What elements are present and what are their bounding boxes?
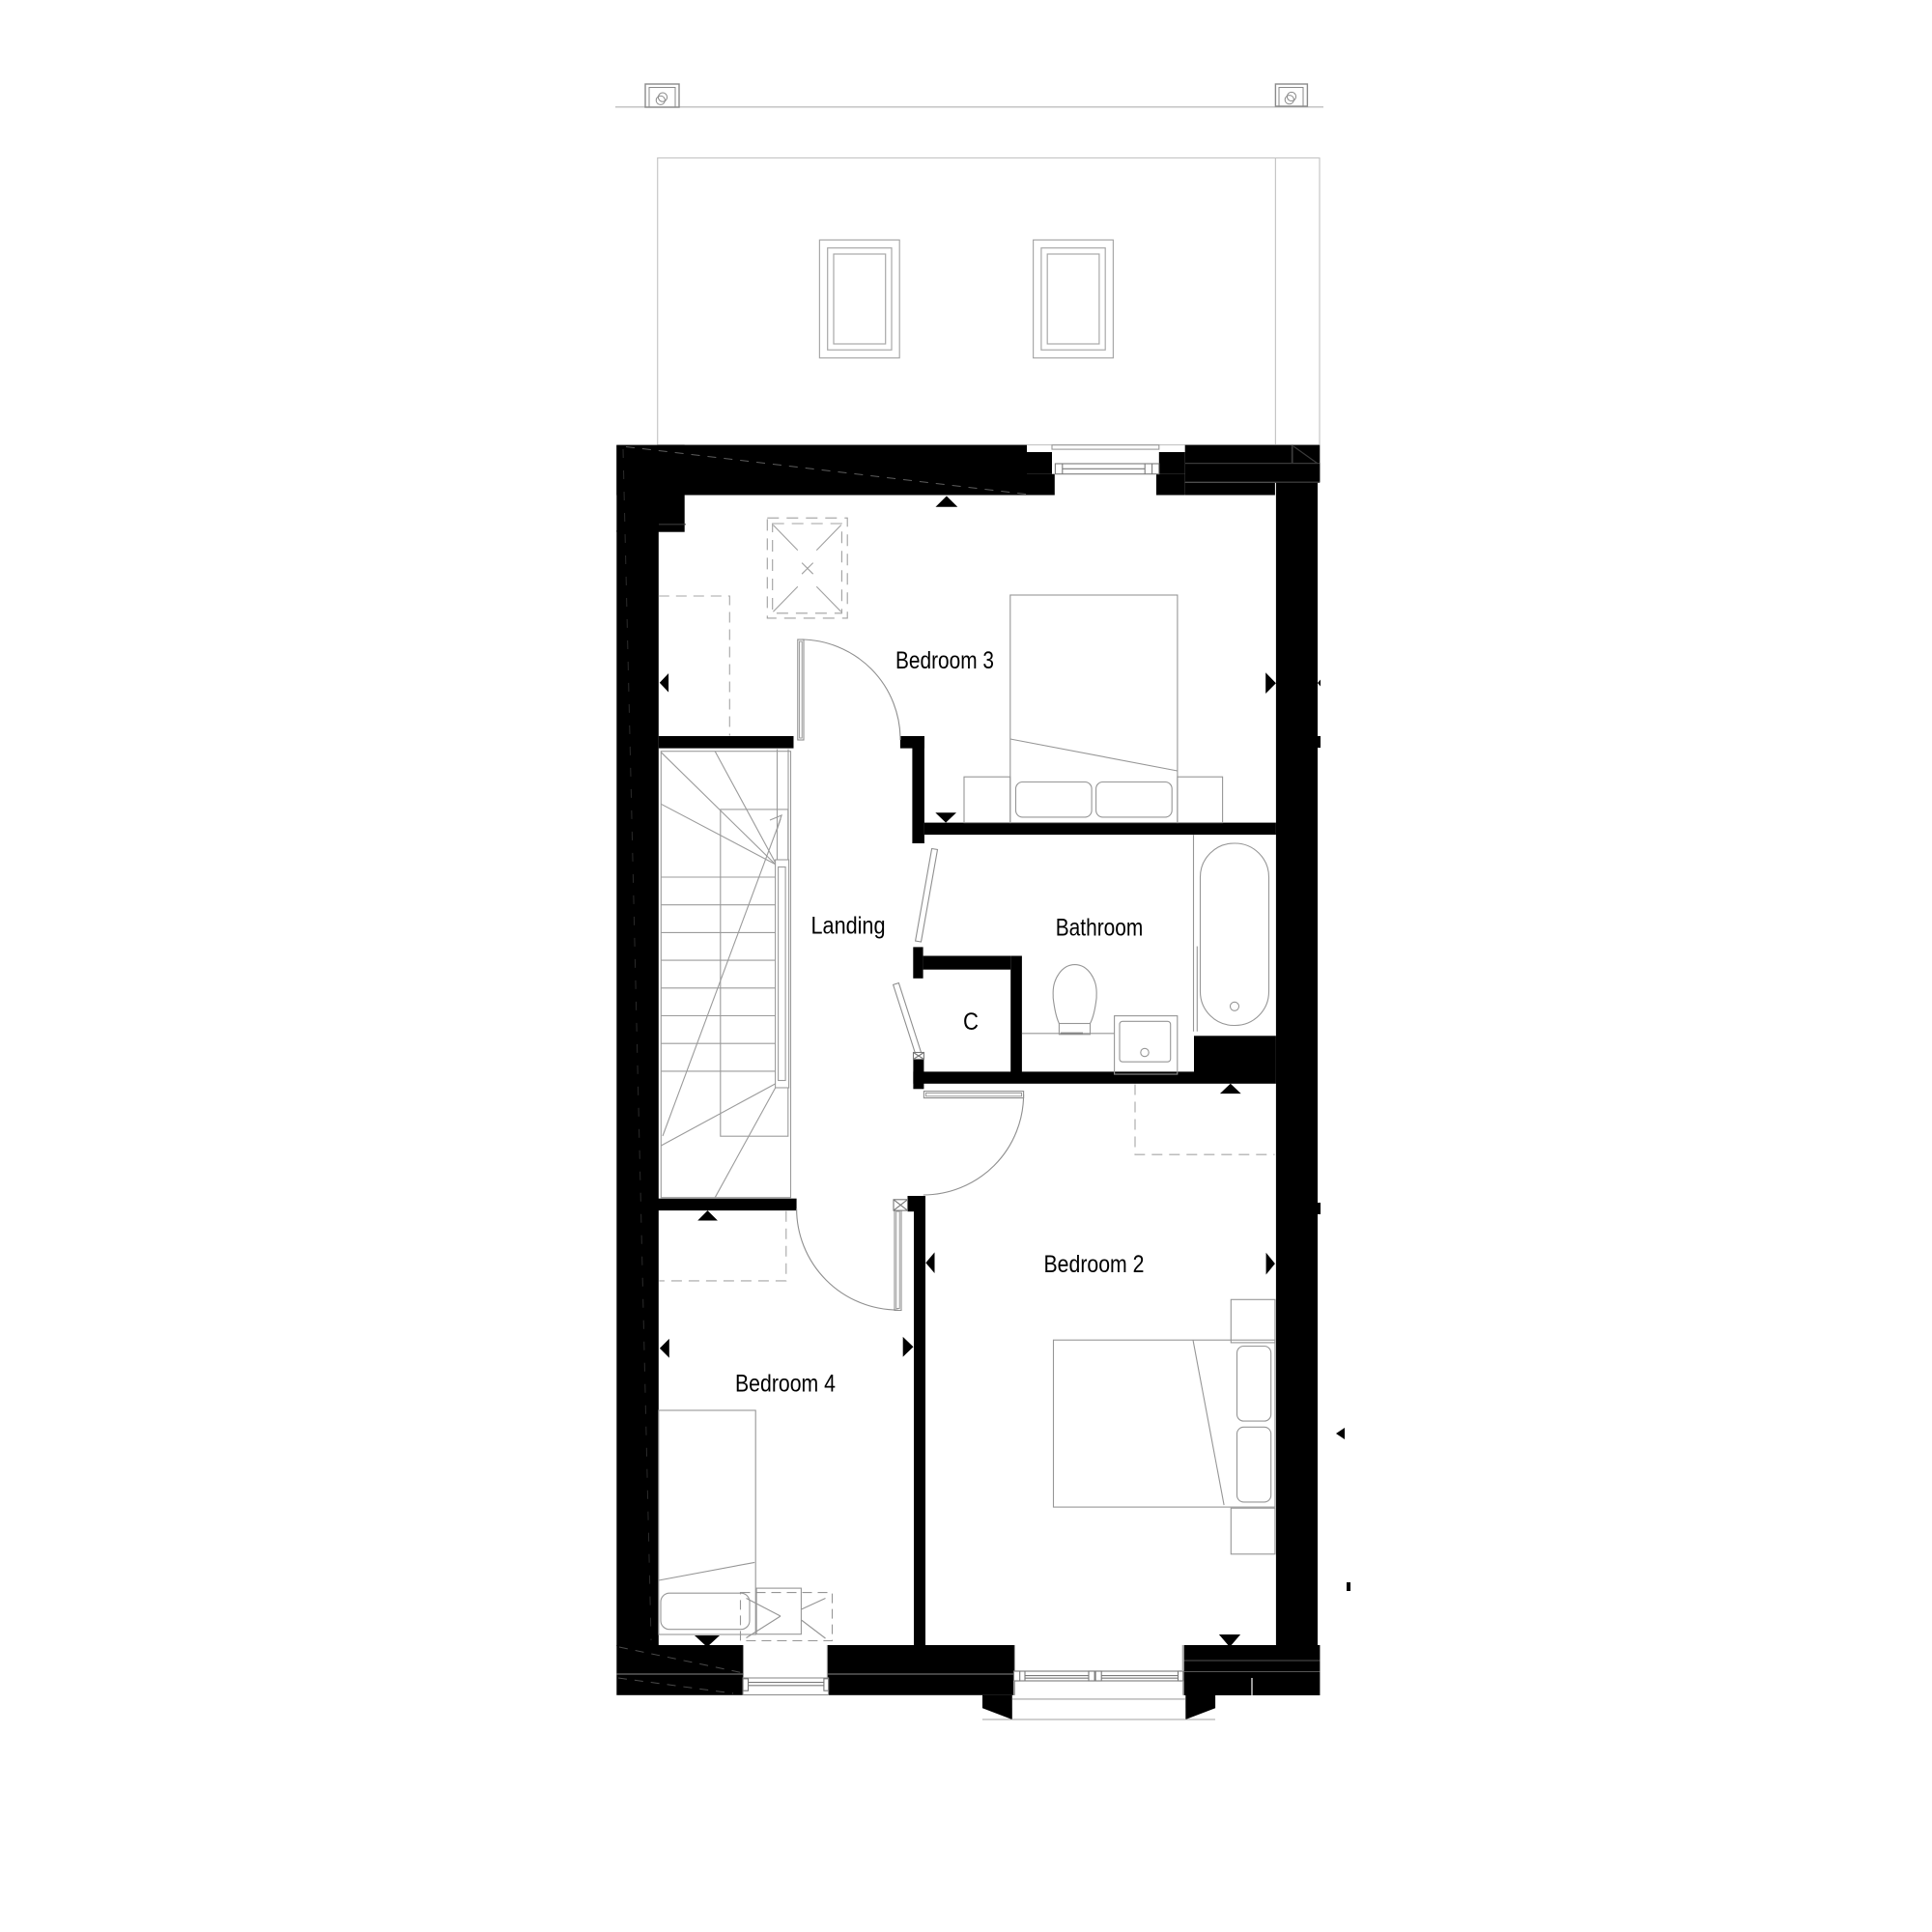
svg-text:C: C — [963, 1009, 979, 1036]
svg-text:Bathroom: Bathroom — [1056, 916, 1144, 942]
svg-text:Bedroom 3: Bedroom 3 — [895, 648, 994, 674]
svg-text:Landing: Landing — [811, 913, 886, 939]
svg-text:Bedroom 2: Bedroom 2 — [1044, 1252, 1145, 1278]
svg-text:Bedroom 4: Bedroom 4 — [735, 1372, 836, 1398]
